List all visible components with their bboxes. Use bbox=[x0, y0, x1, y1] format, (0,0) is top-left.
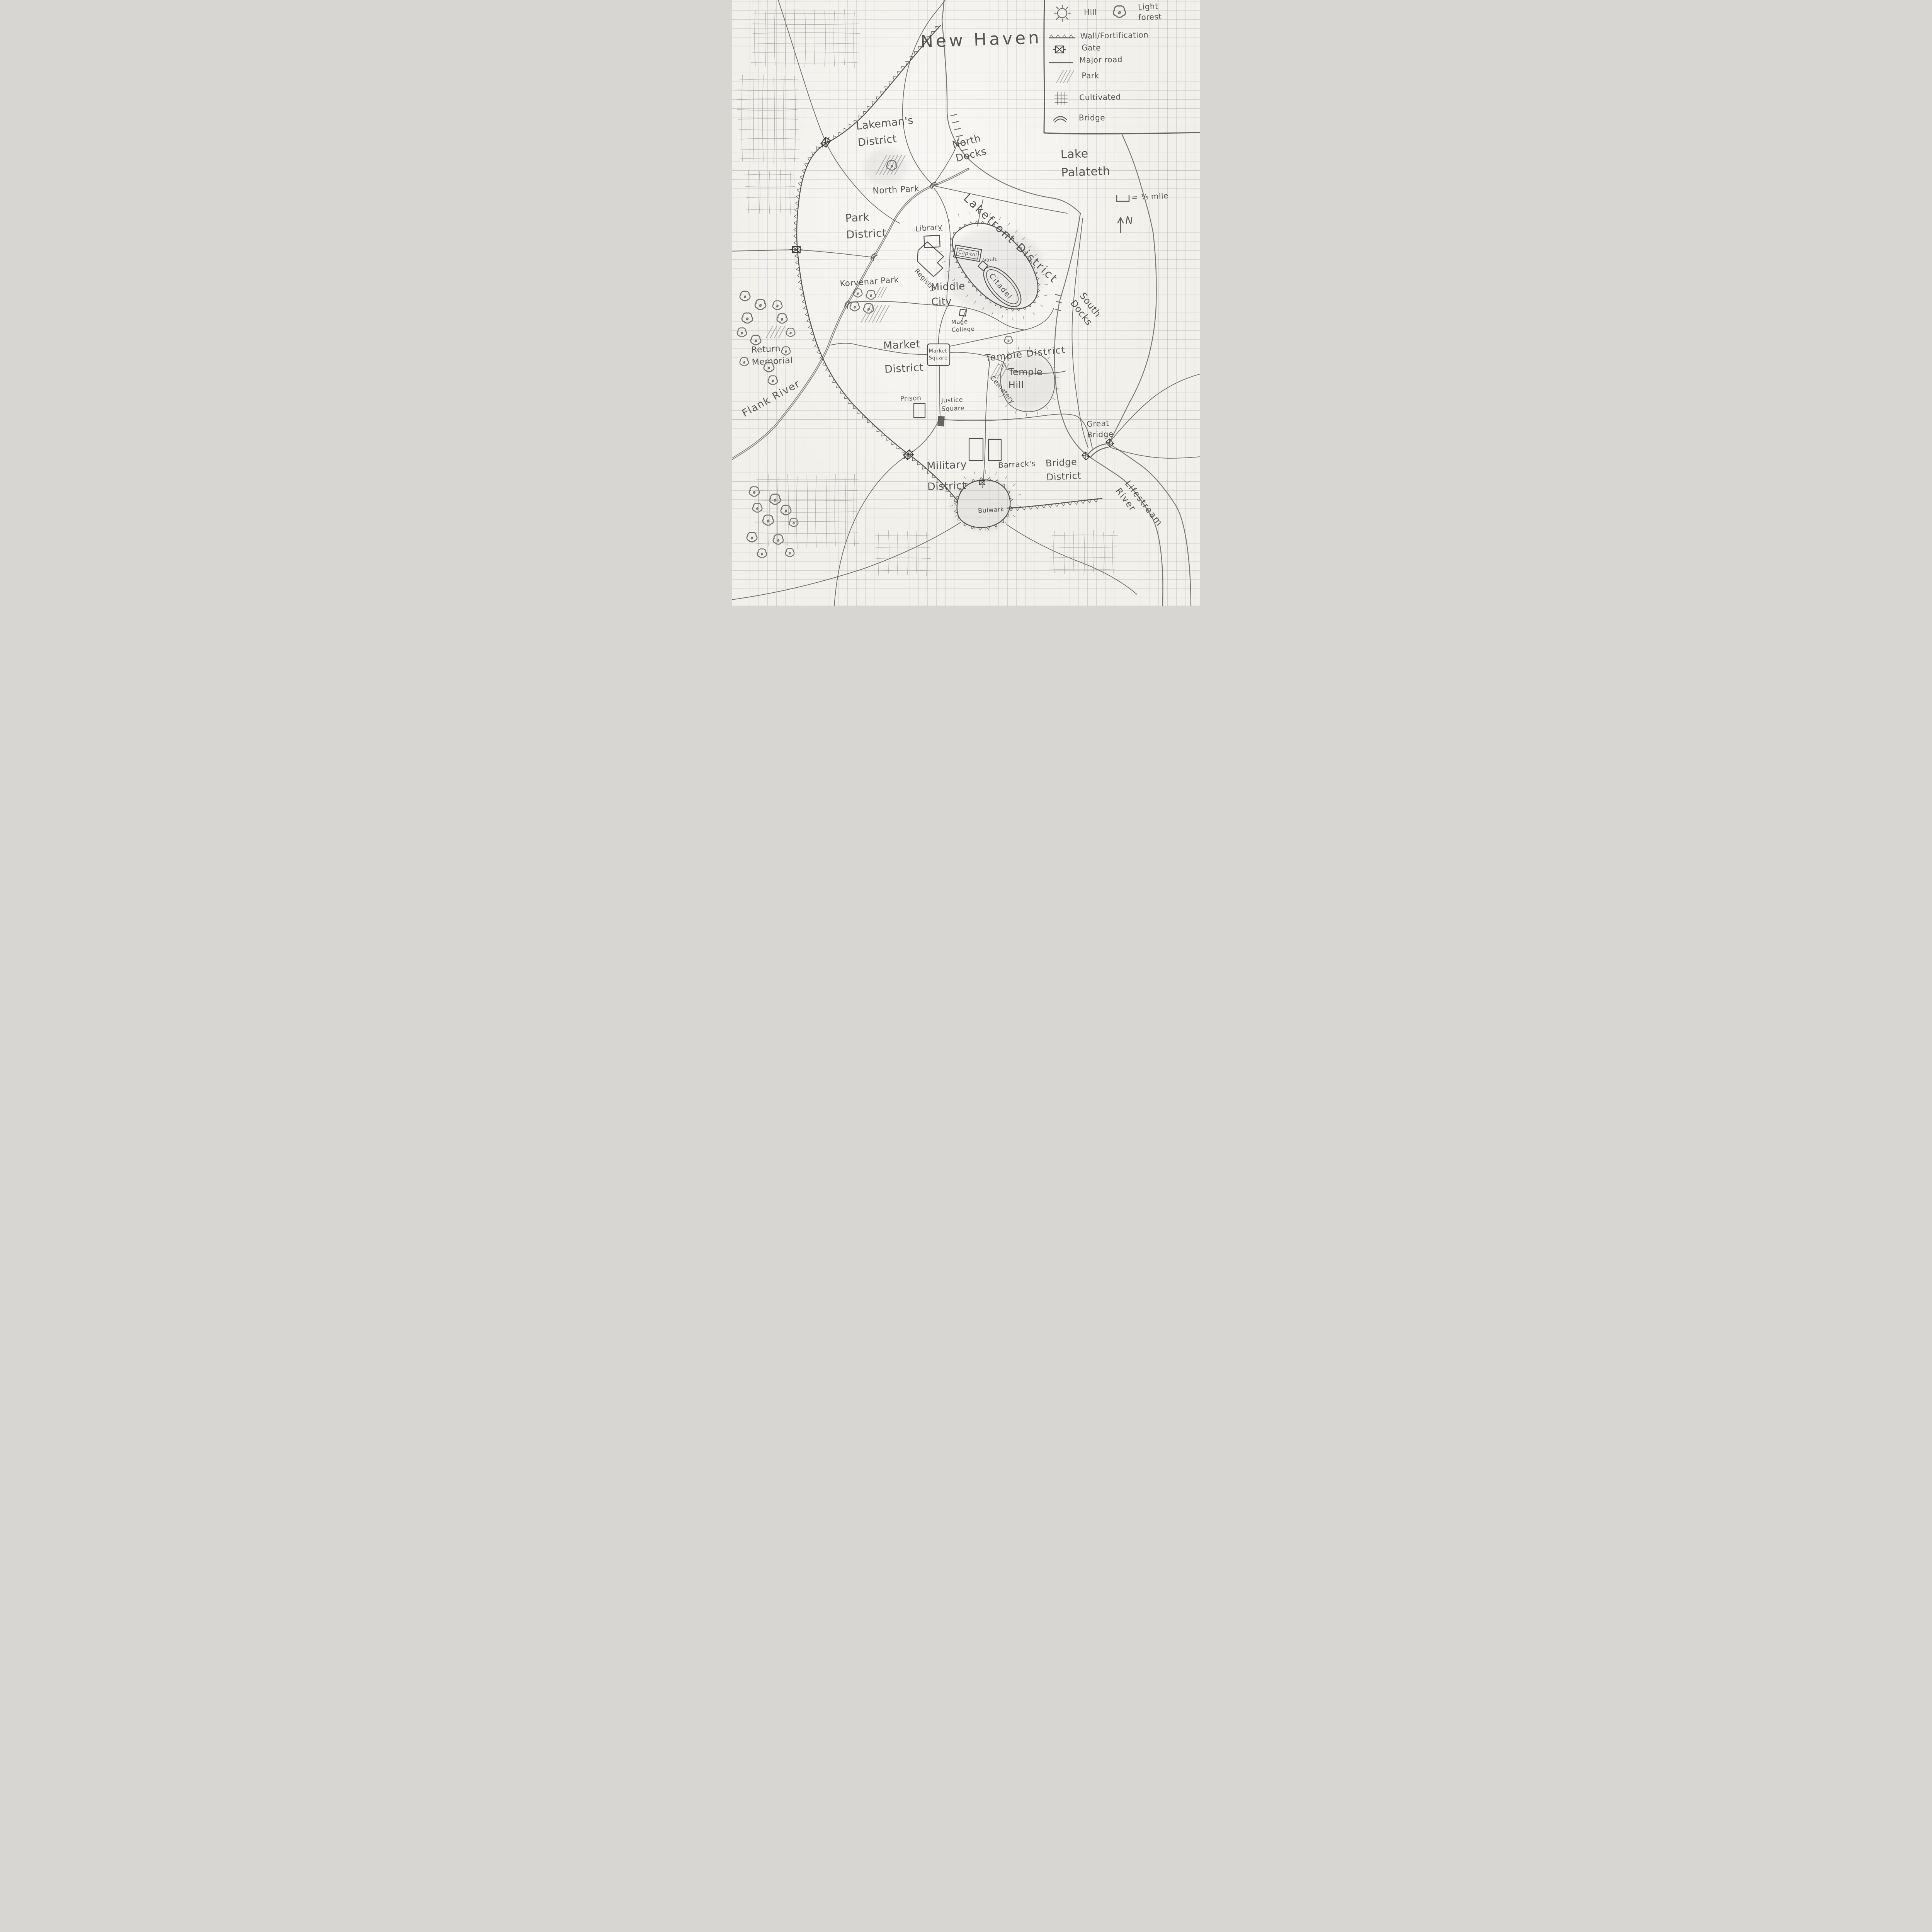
cultivated-line bbox=[746, 209, 796, 210]
cultivated-northwest-1 bbox=[750, 9, 859, 67]
district-bridge: Bridge District bbox=[1045, 455, 1082, 485]
map-title: New Haven bbox=[920, 26, 1042, 53]
hill-tick bbox=[1013, 484, 1015, 486]
legend-label-bridge: Bridge bbox=[1079, 113, 1105, 123]
cultivated-line bbox=[774, 77, 775, 163]
park-hatch-line bbox=[766, 326, 773, 338]
hill-tick bbox=[1005, 476, 1007, 479]
cultivated-line bbox=[876, 547, 930, 548]
cultivated-line bbox=[753, 78, 754, 164]
place-prison: Prison bbox=[900, 394, 921, 404]
scale-label: = ⅕ mile bbox=[1131, 190, 1168, 203]
cultivated-icon bbox=[1055, 92, 1067, 104]
hill-tick bbox=[1013, 317, 1013, 320]
riverside-road bbox=[1072, 218, 1088, 447]
legend-label-light-forest: Light forest bbox=[1138, 0, 1180, 23]
legend-label-major-road: Major road bbox=[1079, 54, 1122, 66]
place-vault: Vault bbox=[983, 256, 997, 264]
hill-tick bbox=[1005, 404, 1008, 406]
hill-tick bbox=[996, 472, 997, 475]
park-hatch-line bbox=[865, 305, 874, 322]
cultivated-line bbox=[814, 10, 815, 65]
hill-tick bbox=[969, 211, 969, 214]
cultivated-line bbox=[1073, 530, 1074, 572]
market-justice-road bbox=[939, 366, 940, 416]
cultivated-southwest bbox=[754, 474, 859, 549]
cultivated-line bbox=[739, 129, 799, 130]
park-hatch-line bbox=[881, 287, 886, 298]
district-market: Market District bbox=[883, 333, 924, 382]
hill-tick bbox=[974, 472, 975, 475]
cultivated-line bbox=[888, 530, 889, 573]
cultivated-line bbox=[874, 535, 929, 536]
hill-tick bbox=[1017, 506, 1021, 507]
legend-label-cultivated: Cultivated bbox=[1079, 92, 1121, 103]
place-market-square: Market Square bbox=[929, 348, 948, 361]
west-gate bbox=[790, 246, 803, 253]
justice-bridge-road bbox=[944, 414, 1092, 448]
park-hatch-line bbox=[878, 287, 883, 298]
cultivated-line bbox=[737, 109, 797, 110]
cultivated-line bbox=[794, 9, 795, 65]
cultivated-line bbox=[769, 474, 769, 546]
hill-tick bbox=[1037, 412, 1038, 415]
cultivated-line bbox=[1104, 532, 1104, 575]
cultivated-line bbox=[758, 477, 759, 549]
light-forest-icon bbox=[1113, 6, 1125, 17]
hill-tick bbox=[1013, 515, 1015, 517]
cultivated-line bbox=[878, 533, 879, 576]
place-mage-college: Mage College bbox=[951, 318, 975, 334]
park-hatch-line bbox=[770, 326, 777, 338]
cultivated-line bbox=[738, 90, 798, 90]
hill-tick bbox=[1008, 223, 1010, 226]
lake-label: Lake Palateth bbox=[1060, 144, 1111, 182]
cultivated-line bbox=[763, 75, 764, 162]
cultivated-line bbox=[876, 558, 931, 559]
cultivated-line bbox=[796, 477, 797, 549]
cultivated-line bbox=[753, 24, 859, 25]
hill-tick bbox=[1053, 398, 1056, 400]
place-temple-hill: Temple Hill bbox=[1009, 366, 1043, 391]
cultivated-line bbox=[755, 490, 858, 491]
cultivated-line bbox=[927, 532, 927, 576]
district-military: Military District bbox=[926, 454, 968, 498]
legend-label-wall: Wall/Fortification bbox=[1080, 30, 1149, 41]
place-great-bridge: Great Bridge bbox=[1087, 418, 1114, 440]
cultivated-line bbox=[757, 543, 859, 543]
cultivated-line bbox=[835, 474, 835, 546]
hill-icon bbox=[1054, 5, 1070, 21]
cultivated-line bbox=[738, 119, 798, 119]
place-justice-square: Justice Square bbox=[941, 396, 965, 414]
district-lakemans: Lakeman's District bbox=[855, 112, 916, 151]
cultivated-line bbox=[1049, 569, 1116, 570]
park-hatch-line bbox=[876, 305, 886, 322]
cultivated-line bbox=[745, 186, 796, 187]
north-arrow-icon bbox=[1118, 218, 1123, 233]
cultivated-northwest-2 bbox=[737, 75, 800, 164]
place-barracks: Barrack's bbox=[998, 458, 1036, 471]
cultivated-line bbox=[788, 474, 789, 546]
park-hatch-line bbox=[1067, 70, 1074, 83]
cultivated-line bbox=[845, 477, 846, 549]
map-page: New Haven Hill Light forest Wall/Fortifi… bbox=[732, 0, 1200, 606]
park-hatch-line bbox=[875, 287, 880, 298]
cultivated-line bbox=[742, 75, 743, 161]
cultivated-line bbox=[746, 197, 796, 198]
gates bbox=[790, 135, 1114, 485]
cultivated-line bbox=[755, 10, 755, 66]
hill-tick bbox=[1044, 295, 1047, 296]
cultivated-line bbox=[740, 149, 800, 150]
cultivated-south-2 bbox=[1049, 530, 1118, 575]
hill-tick bbox=[1002, 315, 1003, 319]
legend-left-border bbox=[1044, 0, 1044, 133]
cultivated-line bbox=[780, 169, 781, 213]
park-hatch-line bbox=[1057, 70, 1064, 83]
cultivated-line bbox=[754, 521, 857, 522]
district-middle-city: Middle City bbox=[930, 279, 966, 310]
legend-label-gate: Gate bbox=[1082, 43, 1101, 53]
hill-tick bbox=[1046, 406, 1048, 409]
legend-bottom-border bbox=[1044, 133, 1200, 134]
cultivated-line bbox=[854, 12, 854, 68]
bridge-icon bbox=[1054, 116, 1066, 122]
cultivated-line bbox=[807, 475, 808, 547]
cultivated-line bbox=[753, 33, 860, 34]
cultivated-line bbox=[1054, 531, 1054, 573]
park-hatch-line bbox=[1064, 70, 1071, 83]
cultivated-line bbox=[834, 11, 835, 66]
barracks-building-east bbox=[988, 439, 1001, 461]
south-wall bbox=[1007, 498, 1102, 508]
north-park-shading bbox=[864, 148, 907, 185]
cultivated-line bbox=[759, 171, 760, 214]
cultivated-line bbox=[748, 170, 749, 213]
cultivated-line bbox=[1112, 531, 1113, 573]
hill-tick bbox=[1023, 316, 1024, 320]
barracks-building-west bbox=[969, 439, 983, 461]
legend-label-hill: Hill bbox=[1084, 7, 1097, 18]
cultivated-line bbox=[753, 43, 859, 44]
cultivated-line bbox=[737, 99, 797, 100]
cultivated-line bbox=[1093, 530, 1094, 572]
cultivated-line bbox=[1051, 547, 1117, 548]
prison-building bbox=[914, 403, 925, 418]
cultivated-line bbox=[1052, 535, 1118, 536]
justice-square-building bbox=[937, 416, 945, 426]
market-north-road bbox=[939, 307, 947, 344]
hill-tick bbox=[1017, 494, 1021, 495]
cultivated-line bbox=[769, 171, 770, 214]
cultivated-line bbox=[877, 570, 932, 571]
park-hatch-line bbox=[779, 326, 785, 338]
cultivated-line bbox=[845, 9, 845, 65]
park-hatch-line bbox=[880, 305, 889, 322]
place-north-park: North Park bbox=[872, 183, 920, 197]
cultivated-line bbox=[1049, 557, 1116, 558]
cultivated-line bbox=[751, 63, 857, 63]
cultivated-line bbox=[790, 172, 791, 215]
cultivated-line bbox=[740, 158, 800, 159]
hill-tick bbox=[1040, 305, 1043, 307]
place-return-memorial: Return Memorial bbox=[751, 342, 793, 369]
bridge-northeast-road bbox=[1110, 374, 1200, 442]
cultivated-line bbox=[816, 476, 816, 548]
lakefront-road bbox=[936, 186, 1067, 213]
park-hatch-line bbox=[774, 326, 781, 338]
hill-tick bbox=[942, 261, 946, 262]
bridge-east-road bbox=[1111, 447, 1200, 458]
cultivated-west bbox=[743, 169, 796, 215]
cultivated-line bbox=[755, 533, 858, 534]
great-bridge bbox=[1087, 443, 1109, 457]
west-gate-road bbox=[732, 250, 873, 257]
hill-tick bbox=[1044, 285, 1048, 285]
cultivated-line bbox=[854, 474, 855, 546]
cultivated-line bbox=[777, 477, 778, 549]
cultivated-line bbox=[1064, 532, 1065, 574]
cultivated-line bbox=[1084, 533, 1085, 575]
scale-bar bbox=[1117, 196, 1129, 201]
cultivated-line bbox=[774, 9, 775, 65]
hill-tick bbox=[1015, 230, 1017, 232]
cultivated-line bbox=[916, 531, 917, 574]
cultivated-line bbox=[907, 531, 908, 575]
hill-tick bbox=[958, 213, 959, 216]
south-southwest-road bbox=[732, 522, 961, 600]
park-hatch-line bbox=[1060, 70, 1067, 83]
hill-tick bbox=[1015, 410, 1017, 413]
cultivated-line bbox=[897, 532, 898, 575]
district-park: Park District bbox=[845, 208, 887, 243]
cultivated-line bbox=[805, 12, 806, 67]
cultivated-line bbox=[825, 11, 825, 66]
cultivated-line bbox=[740, 138, 800, 139]
park-hatch-line bbox=[861, 305, 871, 322]
cultivated-line bbox=[739, 79, 799, 80]
legend-label-park: Park bbox=[1082, 71, 1099, 81]
gate-icon bbox=[1053, 46, 1066, 53]
cultivated-line bbox=[785, 12, 786, 68]
hill-tick bbox=[939, 252, 942, 252]
cultivated-line bbox=[765, 11, 766, 67]
cultivated-line bbox=[756, 479, 859, 480]
hill-tick bbox=[1033, 312, 1035, 315]
memorial-hatch bbox=[764, 326, 781, 338]
